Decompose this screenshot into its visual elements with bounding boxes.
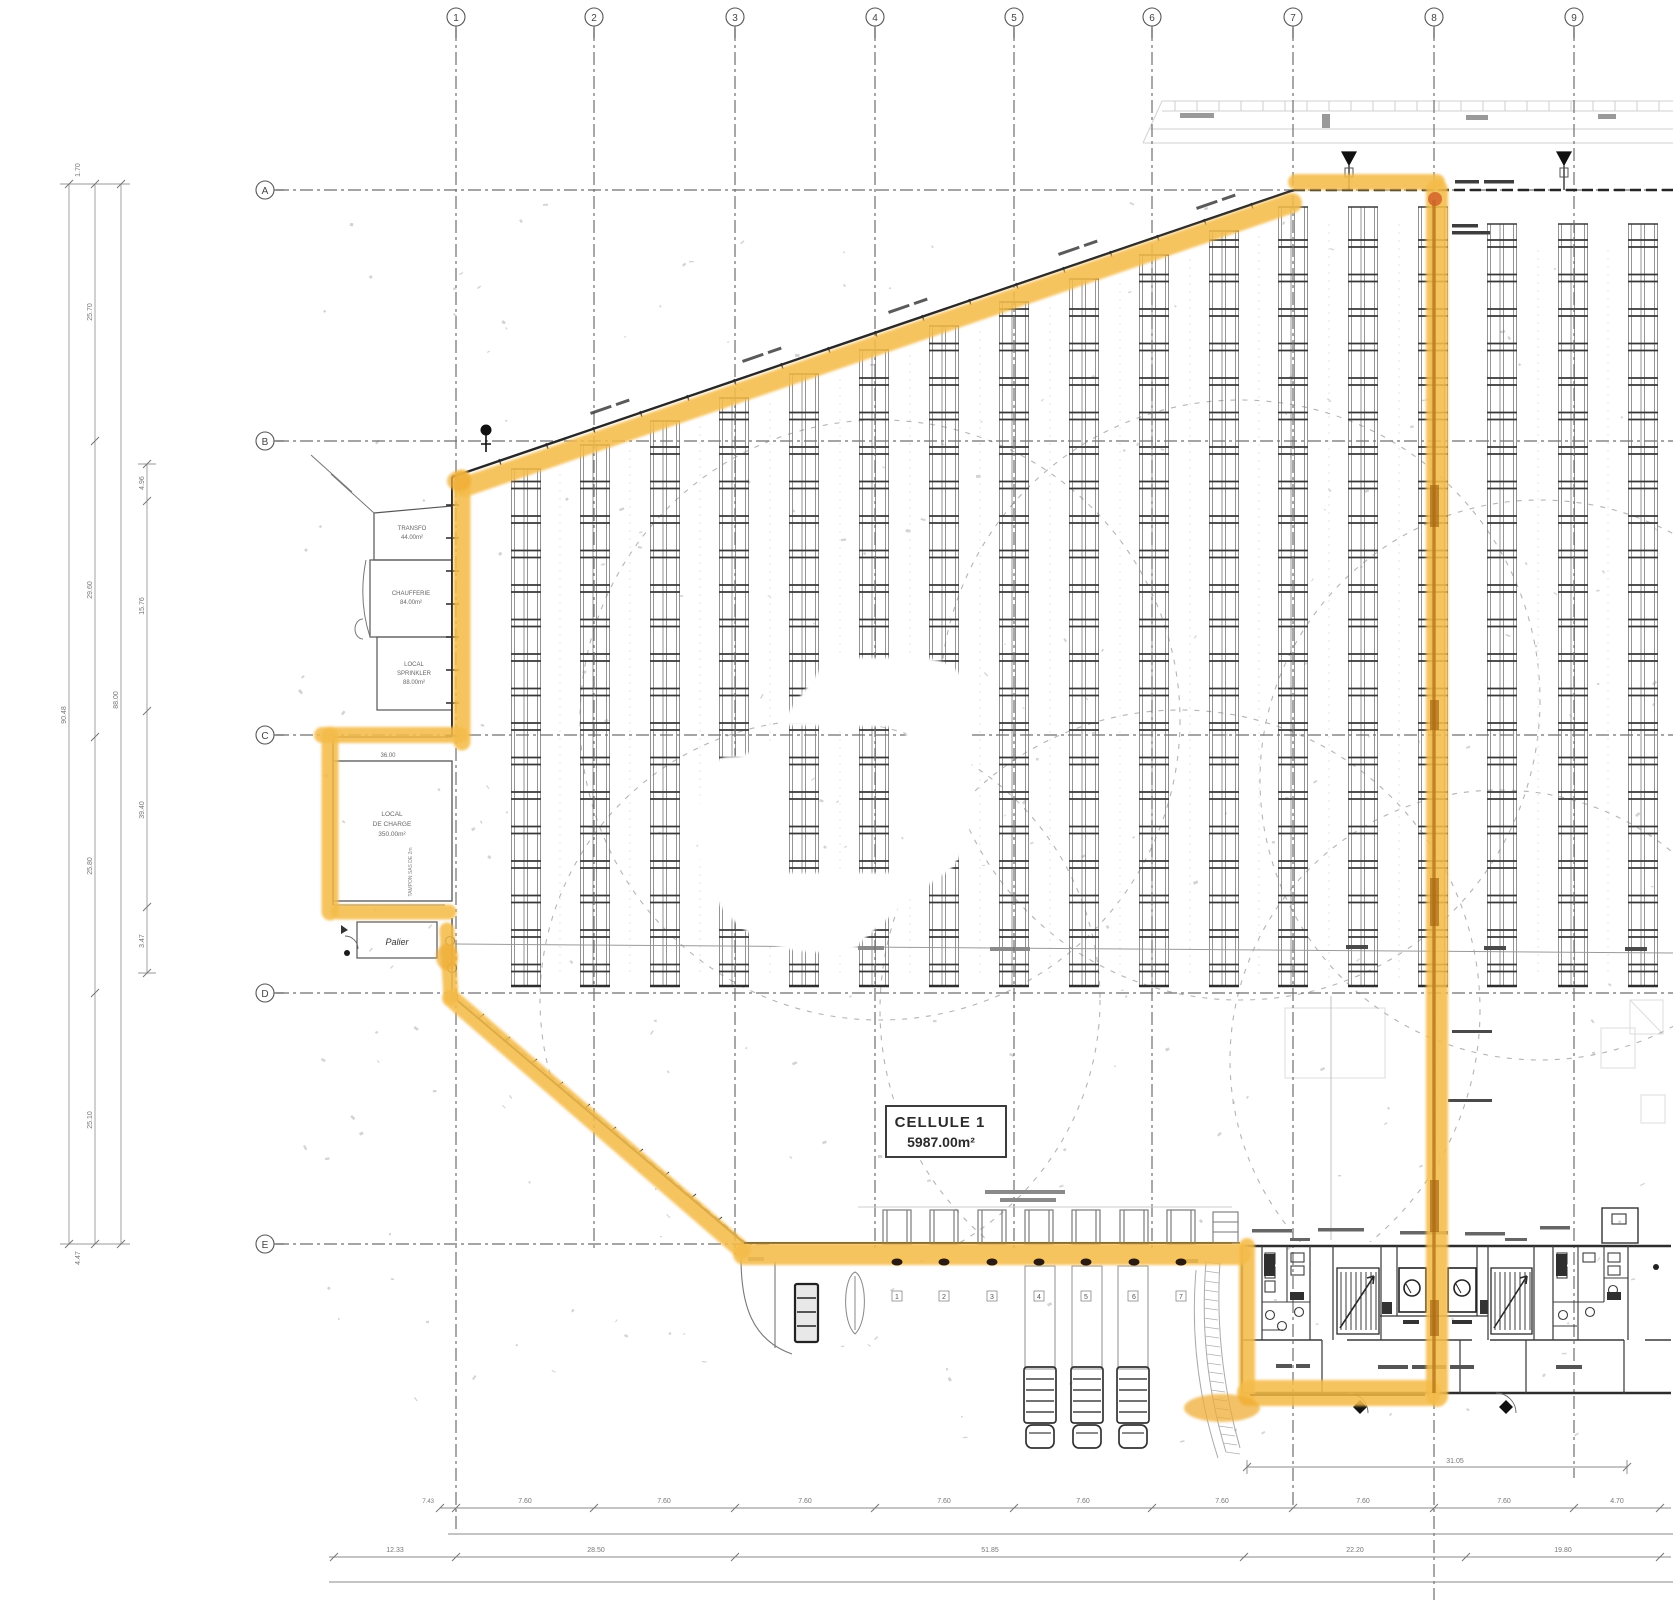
svg-text:4.96: 4.96 — [139, 476, 146, 490]
svg-text:25.70: 25.70 — [87, 303, 94, 321]
svg-text:6: 6 — [1132, 1294, 1136, 1301]
svg-text:15.76: 15.76 — [139, 597, 146, 615]
svg-text:7.60: 7.60 — [937, 1498, 951, 1505]
svg-text:CELLULE 1: CELLULE 1 — [895, 1114, 986, 1131]
svg-text:B: B — [262, 437, 269, 448]
svg-text:7.60: 7.60 — [1497, 1498, 1511, 1505]
svg-text:C: C — [261, 731, 268, 742]
svg-text:22.20: 22.20 — [1346, 1547, 1364, 1554]
svg-text:9: 9 — [1571, 13, 1577, 24]
svg-text:12.33: 12.33 — [386, 1547, 404, 1554]
svg-text:31.05: 31.05 — [1446, 1458, 1464, 1465]
svg-text:2: 2 — [942, 1294, 946, 1301]
svg-text:5: 5 — [1011, 13, 1017, 24]
svg-text:5: 5 — [1084, 1294, 1088, 1301]
svg-text:88.00: 88.00 — [113, 691, 120, 709]
svg-text:3: 3 — [990, 1294, 994, 1301]
svg-text:8: 8 — [1431, 13, 1437, 24]
svg-text:TAMPON SAS DE 2m: TAMPON SAS DE 2m — [408, 847, 414, 896]
svg-text:1: 1 — [895, 1294, 899, 1301]
svg-text:44.00m²: 44.00m² — [401, 535, 423, 541]
svg-text:39.40: 39.40 — [139, 801, 146, 819]
svg-text:7.60: 7.60 — [657, 1498, 671, 1505]
svg-text:88.00m²: 88.00m² — [403, 680, 425, 686]
svg-text:1: 1 — [453, 13, 459, 24]
svg-text:7.60: 7.60 — [518, 1498, 532, 1505]
svg-text:Palier: Palier — [385, 937, 409, 947]
svg-text:4: 4 — [1037, 1294, 1041, 1301]
svg-text:CHAUFFERIE: CHAUFFERIE — [392, 591, 430, 597]
svg-text:25.80: 25.80 — [87, 857, 94, 875]
svg-text:SPRINKLER: SPRINKLER — [397, 671, 432, 677]
svg-text:4: 4 — [872, 13, 878, 24]
svg-text:7.43: 7.43 — [422, 1499, 434, 1505]
svg-text:36.00: 36.00 — [380, 753, 396, 759]
svg-text:4.47: 4.47 — [75, 1251, 82, 1265]
svg-text:TRANSFO: TRANSFO — [398, 526, 427, 532]
svg-text:A: A — [262, 186, 269, 197]
svg-text:LOCAL: LOCAL — [404, 662, 424, 668]
svg-text:7: 7 — [1290, 13, 1296, 24]
svg-text:7.60: 7.60 — [1356, 1498, 1370, 1505]
svg-text:25.10: 25.10 — [87, 1111, 94, 1129]
svg-text:6: 6 — [1149, 13, 1155, 24]
svg-text:5987.00m²: 5987.00m² — [907, 1134, 975, 1150]
svg-text:90.48: 90.48 — [61, 706, 68, 724]
svg-text:7: 7 — [1179, 1294, 1183, 1301]
svg-text:4.70: 4.70 — [1610, 1498, 1624, 1505]
svg-text:D: D — [261, 989, 268, 1000]
svg-text:7.60: 7.60 — [798, 1498, 812, 1505]
svg-text:E: E — [262, 1240, 269, 1251]
svg-text:7.60: 7.60 — [1076, 1498, 1090, 1505]
svg-text:51.85: 51.85 — [981, 1547, 999, 1554]
svg-text:LOCAL: LOCAL — [381, 811, 403, 818]
svg-text:350.00m²: 350.00m² — [378, 831, 406, 838]
svg-text:2: 2 — [591, 13, 597, 24]
svg-text:DE CHARGE: DE CHARGE — [373, 821, 412, 828]
svg-text:28.50: 28.50 — [587, 1547, 605, 1554]
svg-text:7.60: 7.60 — [1215, 1498, 1229, 1505]
svg-text:19.80: 19.80 — [1554, 1547, 1572, 1554]
svg-text:1.70: 1.70 — [75, 163, 82, 177]
svg-text:3: 3 — [732, 13, 738, 24]
svg-text:84.00m²: 84.00m² — [400, 600, 422, 606]
svg-text:29.60: 29.60 — [87, 581, 94, 599]
svg-text:3.47: 3.47 — [139, 934, 146, 948]
